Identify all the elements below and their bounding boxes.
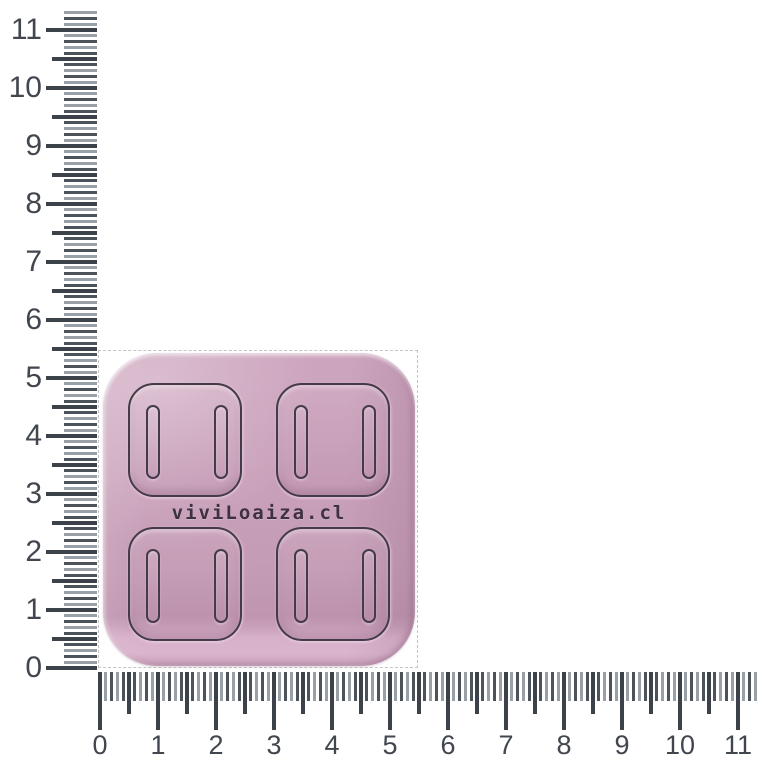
ruler-tick xyxy=(667,672,670,701)
ruler-tick xyxy=(64,301,97,304)
ruler-tick xyxy=(46,144,97,147)
ruler-tick xyxy=(64,632,97,635)
ruler-tick xyxy=(609,672,612,701)
ruler-tick xyxy=(528,672,531,701)
ruler-tick xyxy=(64,214,97,217)
ruler-tick xyxy=(487,672,490,701)
mold-slot xyxy=(294,405,308,479)
ruler-tick xyxy=(46,376,97,379)
ruler-tick xyxy=(470,672,473,701)
ruler-tick xyxy=(603,672,606,701)
ruler-tick xyxy=(64,388,97,391)
ruler-number-label: 11 xyxy=(716,730,760,760)
ruler-tick xyxy=(748,672,751,701)
ruler-tick xyxy=(64,266,97,269)
ruler-tick xyxy=(64,568,97,571)
ruler-tick xyxy=(64,452,97,455)
ruler-tick xyxy=(394,672,397,701)
ruler-tick xyxy=(64,655,97,658)
ruler-tick xyxy=(64,23,97,26)
mold-cell xyxy=(128,527,242,641)
ruler-tick xyxy=(64,307,97,310)
ruler-tick xyxy=(365,672,368,701)
ruler-tick xyxy=(46,434,97,437)
ruler-tick xyxy=(464,672,467,701)
ruler-tick xyxy=(174,672,177,701)
ruler-tick xyxy=(586,672,589,701)
ruler-tick xyxy=(383,672,386,701)
ruler-tick xyxy=(46,492,97,495)
ruler-tick xyxy=(504,672,507,730)
ruler-tick xyxy=(580,672,583,701)
ruler-number-label: 5 xyxy=(2,361,42,395)
ruler-tick xyxy=(98,672,101,730)
ruler-tick xyxy=(64,597,97,600)
ruler-tick xyxy=(336,672,339,701)
ruler-tick xyxy=(64,475,97,478)
ruler-tick xyxy=(46,260,97,263)
ruler-tick xyxy=(423,672,426,701)
ruler-tick xyxy=(64,371,97,374)
ruler-number-label: 7 xyxy=(2,245,42,279)
ruler-tick xyxy=(325,672,328,701)
ruler-tick xyxy=(249,672,252,701)
ruler-tick xyxy=(510,672,513,701)
ruler-tick xyxy=(64,330,97,333)
ruler-tick xyxy=(162,672,165,701)
mold-slot xyxy=(294,549,308,623)
ruler-tick xyxy=(64,620,97,623)
ruler-tick xyxy=(64,423,97,426)
ruler-tick xyxy=(736,672,739,730)
ruler-tick xyxy=(64,527,97,530)
ruler-tick xyxy=(731,672,734,701)
ruler-tick xyxy=(52,115,97,118)
ruler-tick xyxy=(417,672,420,714)
ruler-tick xyxy=(64,510,97,513)
ruler-tick xyxy=(64,504,97,507)
ruler-tick xyxy=(545,672,548,701)
ruler-tick xyxy=(754,672,757,701)
ruler-tick xyxy=(64,487,97,490)
ruler-tick xyxy=(64,220,97,223)
ruler-tick xyxy=(127,672,130,714)
ruler-tick xyxy=(638,672,641,701)
ruler-tick xyxy=(452,672,455,701)
ruler-number-label: 9 xyxy=(2,129,42,163)
ruler-tick xyxy=(64,649,97,652)
mold-slot xyxy=(214,405,228,479)
ruler-tick xyxy=(46,28,97,31)
ruler-tick xyxy=(267,672,270,701)
ruler-tick xyxy=(168,672,171,701)
ruler-tick xyxy=(406,672,409,701)
mold-slot xyxy=(362,405,376,479)
ruler-tick xyxy=(64,411,97,414)
ruler-tick xyxy=(232,672,235,701)
ruler-tick xyxy=(301,672,304,714)
ruler-number-label: 1 xyxy=(2,593,42,627)
ruler-tick xyxy=(696,672,699,701)
ruler-tick xyxy=(290,672,293,701)
ruler-number-label: 9 xyxy=(600,730,644,760)
ruler-tick xyxy=(64,63,97,66)
ruler-number-label: 8 xyxy=(542,730,586,760)
ruler-tick xyxy=(46,608,97,611)
ruler-tick xyxy=(64,278,97,281)
ruler-tick xyxy=(284,672,287,701)
ruler-number-label: 2 xyxy=(194,730,238,760)
ruler-tick xyxy=(64,481,97,484)
ruler-tick xyxy=(52,521,97,524)
ruler-tick xyxy=(180,672,183,701)
ruler-tick xyxy=(313,672,316,701)
ruler-tick xyxy=(52,463,97,466)
ruler-tick xyxy=(64,110,97,113)
ruler-tick xyxy=(64,156,97,159)
ruler-tick xyxy=(64,458,97,461)
ruler-tick xyxy=(64,498,97,501)
ruler-tick xyxy=(533,672,536,714)
ruler-tick xyxy=(64,185,97,188)
ruler-tick xyxy=(481,672,484,701)
ruler-tick xyxy=(359,672,362,714)
ruler-tick xyxy=(104,672,107,701)
ruler-tick xyxy=(626,672,629,701)
ruler-tick xyxy=(64,255,97,258)
ruler-tick xyxy=(52,289,97,292)
ruler-tick xyxy=(644,672,647,701)
ruler-tick xyxy=(620,672,623,730)
ruler-tick xyxy=(64,545,97,548)
ruler-tick xyxy=(64,591,97,594)
ruler-tick xyxy=(64,417,97,420)
ruler-tick xyxy=(562,672,565,730)
ruler-tick xyxy=(475,672,478,714)
ruler-tick xyxy=(64,394,97,397)
ruler-number-label: 2 xyxy=(2,535,42,569)
mold-cell xyxy=(128,383,242,497)
ruler-tick xyxy=(64,81,97,84)
ruler-tick xyxy=(673,672,676,701)
ruler-tick xyxy=(64,533,97,536)
ruler-tick xyxy=(238,672,241,701)
ruler-number-label: 6 xyxy=(2,303,42,337)
ruler-tick xyxy=(64,295,97,298)
ruler-number-label: 1 xyxy=(136,730,180,760)
ruler-tick xyxy=(52,405,97,408)
ruler-tick xyxy=(493,672,496,701)
ruler-tick xyxy=(719,672,722,701)
ruler-tick xyxy=(64,614,97,617)
mold-slot xyxy=(362,549,376,623)
ruler-number-label: 8 xyxy=(2,187,42,221)
ruler-tick xyxy=(52,231,97,234)
ruler-tick xyxy=(551,672,554,701)
ruler-tick xyxy=(690,672,693,701)
ruler-tick xyxy=(678,672,681,730)
ruler-tick xyxy=(354,672,357,701)
ruler-tick xyxy=(412,672,415,701)
ruler-tick xyxy=(64,556,97,559)
ruler-tick xyxy=(64,34,97,37)
ruler-tick xyxy=(64,133,97,136)
ruler-tick xyxy=(458,672,461,701)
ruler-tick xyxy=(64,562,97,565)
ruler-tick xyxy=(191,672,194,701)
ruler-tick xyxy=(707,672,710,714)
ruler-tick xyxy=(568,672,571,701)
ruler-tick xyxy=(64,469,97,472)
ruler-tick xyxy=(64,539,97,542)
ruler-tick xyxy=(203,672,206,701)
ruler-number-label: 3 xyxy=(252,730,296,760)
ruler-tick xyxy=(52,347,97,350)
ruler-number-label: 0 xyxy=(2,651,42,685)
mold-slot xyxy=(146,549,160,623)
mold-slot xyxy=(214,549,228,623)
ruler-tick xyxy=(713,672,716,701)
ruler-tick xyxy=(655,672,658,701)
ruler-tick xyxy=(133,672,136,701)
mold-cell xyxy=(276,383,390,497)
ruler-tick xyxy=(64,104,97,107)
ruler-tick xyxy=(64,272,97,275)
ruler-tick xyxy=(64,226,97,229)
ruler-number-label: 3 xyxy=(2,477,42,511)
ruler-tick xyxy=(185,672,188,714)
ruler-tick xyxy=(377,672,380,701)
ruler-tick xyxy=(522,672,525,701)
ruler-tick xyxy=(429,672,432,701)
ruler-tick xyxy=(151,672,154,701)
ruler-number-label: 4 xyxy=(310,730,354,760)
ruler-tick xyxy=(64,46,97,49)
ruler-tick xyxy=(400,672,403,701)
ruler-tick xyxy=(52,637,97,640)
ruler-tick xyxy=(220,672,223,701)
ruler-tick xyxy=(64,516,97,519)
ruler-tick xyxy=(725,672,728,701)
ruler-tick xyxy=(64,429,97,432)
mold-cell xyxy=(276,527,390,641)
ruler-tick xyxy=(64,98,97,101)
ruler-tick xyxy=(46,318,97,321)
ruler-tick xyxy=(64,243,97,246)
ruler-tick xyxy=(64,121,97,124)
ruler-number-label: 6 xyxy=(426,730,470,760)
ruler-number-label: 0 xyxy=(78,730,122,760)
ruler-tick xyxy=(435,672,438,701)
ruler-tick xyxy=(255,672,258,701)
ruler-tick xyxy=(64,150,97,153)
product-mold: viviLoaiza.cl xyxy=(103,353,415,666)
ruler-tick xyxy=(702,672,705,701)
ruler-tick xyxy=(742,672,745,701)
ruler-tick xyxy=(64,191,97,194)
ruler-tick xyxy=(64,400,97,403)
ruler-tick xyxy=(539,672,542,701)
brand-text: viviLoaiza.cl xyxy=(103,502,415,524)
ruler-tick xyxy=(64,359,97,362)
ruler-tick xyxy=(342,672,345,701)
ruler-tick xyxy=(139,672,142,701)
ruler-tick xyxy=(110,672,113,701)
ruler-tick xyxy=(371,672,374,701)
ruler-tick xyxy=(64,643,97,646)
ruler-tick xyxy=(64,127,97,130)
ruler-tick xyxy=(296,672,299,701)
ruler-tick xyxy=(64,661,97,664)
ruler-tick xyxy=(214,672,217,730)
ruler-tick xyxy=(64,92,97,95)
ruler-tick xyxy=(64,440,97,443)
ruler-number-label: 5 xyxy=(368,730,412,760)
ruler-tick xyxy=(64,336,97,339)
ruler-tick xyxy=(64,11,97,14)
ruler-number-label: 10 xyxy=(2,71,42,105)
ruler-tick xyxy=(661,672,664,701)
ruler-tick xyxy=(64,284,97,287)
ruler-tick xyxy=(243,672,246,714)
ruler-tick xyxy=(441,672,444,701)
ruler-tick xyxy=(197,672,200,701)
ruler-tick xyxy=(64,342,97,345)
ruler-tick xyxy=(597,672,600,701)
ruler-tick xyxy=(348,672,351,701)
ruler-tick xyxy=(330,672,333,730)
ruler-tick xyxy=(64,237,97,240)
ruler-tick xyxy=(615,672,618,701)
ruler-tick xyxy=(52,579,97,582)
ruler-tick xyxy=(278,672,281,701)
ruler-tick xyxy=(319,672,322,701)
ruler-tick xyxy=(64,162,97,165)
ruler-tick xyxy=(684,672,687,701)
ruler-tick xyxy=(516,672,519,701)
ruler-tick xyxy=(649,672,652,714)
ruler-tick xyxy=(46,666,97,669)
ruler-tick xyxy=(156,672,159,730)
ruler-tick xyxy=(64,17,97,20)
ruler-tick xyxy=(64,69,97,72)
ruler-tick xyxy=(64,168,97,171)
ruler-tick xyxy=(209,672,212,701)
ruler-tick xyxy=(574,672,577,701)
ruler-tick xyxy=(122,672,125,701)
ruler-tick xyxy=(446,672,449,730)
ruler-number-label: 10 xyxy=(658,730,702,760)
ruler-tick xyxy=(46,86,97,89)
ruler-tick xyxy=(388,672,391,730)
ruler-tick xyxy=(591,672,594,714)
ruler-tick xyxy=(145,672,148,701)
ruler-tick xyxy=(261,672,264,701)
ruler-tick xyxy=(64,197,97,200)
ruler-number-label: 4 xyxy=(2,419,42,453)
ruler-tick xyxy=(64,324,97,327)
ruler-tick xyxy=(226,672,229,701)
ruler-tick xyxy=(64,382,97,385)
mold-slot xyxy=(146,405,160,479)
ruler-tick xyxy=(52,57,97,60)
ruler-tick xyxy=(64,313,97,316)
ruler-tick xyxy=(64,139,97,142)
ruler-tick xyxy=(64,603,97,606)
ruler-tick xyxy=(52,173,97,176)
ruler-tick xyxy=(64,353,97,356)
ruler-tick xyxy=(64,179,97,182)
ruler-tick xyxy=(64,75,97,78)
ruler-tick xyxy=(64,52,97,55)
ruler-tick xyxy=(64,446,97,449)
product-measurement-image: 01234567891011 01234567891011 viviLoaiza… xyxy=(0,0,760,760)
ruler-tick xyxy=(64,574,97,577)
ruler-tick xyxy=(46,550,97,553)
ruler-tick xyxy=(64,208,97,211)
ruler-tick xyxy=(64,626,97,629)
ruler-tick xyxy=(64,365,97,368)
ruler-tick xyxy=(499,672,502,701)
ruler-tick xyxy=(307,672,310,701)
ruler-tick xyxy=(64,40,97,43)
ruler-tick xyxy=(64,249,97,252)
ruler-number-label: 7 xyxy=(484,730,528,760)
ruler-number-label: 11 xyxy=(2,13,42,47)
ruler-tick xyxy=(557,672,560,701)
ruler-tick xyxy=(64,585,97,588)
ruler-tick xyxy=(116,672,119,701)
ruler-tick xyxy=(272,672,275,730)
ruler-tick xyxy=(632,672,635,701)
ruler-tick xyxy=(46,202,97,205)
